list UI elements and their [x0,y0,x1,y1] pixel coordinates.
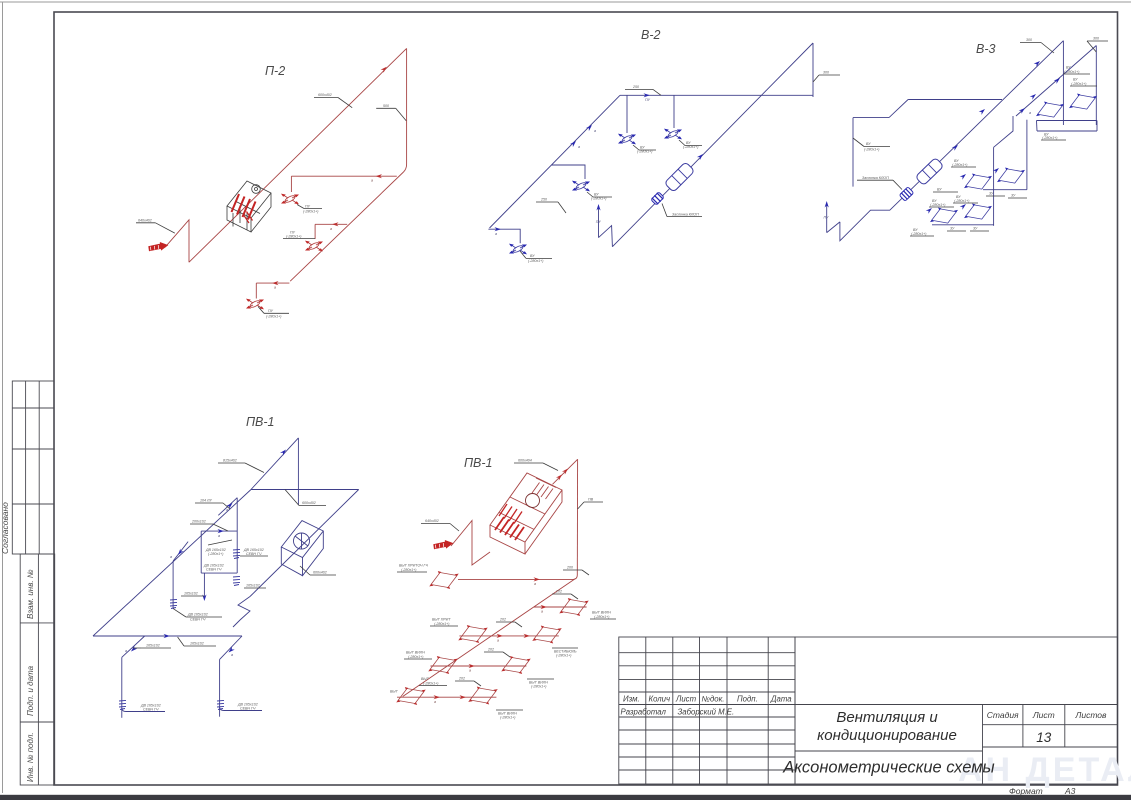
svg-text:а: а [541,610,543,614]
svg-text:165х102: 165х102 [246,584,260,588]
svg-text:(-280х1+): (-280х1+) [266,314,281,318]
svg-text:Листов: Листов [1075,710,1108,720]
svg-text:а: а [218,534,220,538]
svg-text:(-280х1+): (-280х1+) [1071,82,1086,86]
svg-text:ДВ 165х102: ДВ 165х102 [187,613,208,617]
svg-text:165х102: 165х102 [146,644,160,648]
svg-text:СЕВН ГЧ: СЕВН ГЧ [206,568,222,572]
svg-text:а: а [330,227,332,231]
svg-text:(-280х1+): (-280х1+) [683,145,698,149]
svg-text:ПВ: ПВ [588,498,594,502]
svg-text:(-280х1+): (-280х1+) [1042,136,1057,140]
svg-text:а: а [578,145,580,149]
svg-text:250: 250 [540,198,547,202]
svg-text:104 ЛУ: 104 ЛУ [200,499,212,503]
svg-text:Подп. и дата: Подп. и дата [26,665,35,716]
svg-text:а: а [469,669,471,673]
svg-text:а: а [495,232,497,236]
svg-text:ПУ: ПУ [824,216,830,220]
svg-text:ВУ: ВУ [530,254,535,258]
svg-text:(-280х1+): (-280х1+) [952,163,967,167]
svg-text:(-280х1+): (-280х1+) [408,655,423,659]
svg-text:200х102: 200х102 [191,520,206,524]
svg-text:300: 300 [1026,38,1032,42]
svg-text:Колич: Колич [649,695,671,704]
svg-text:165х102: 165х102 [190,642,204,646]
svg-text:(-280х1+): (-280х1+) [556,654,571,658]
svg-text:ВУ: ВУ [937,188,942,192]
svg-text:а: а [371,179,373,183]
svg-text:640х402: 640х402 [138,219,152,223]
svg-text:А3: А3 [1064,786,1076,796]
svg-text:300: 300 [823,71,829,75]
svg-text:Вентиляция и: Вентиляция и [836,709,938,726]
svg-text:П-2: П-2 [265,64,285,78]
svg-text:а: а [534,582,536,586]
svg-text:Заслонка КЛОП: Заслонка КЛОП [862,176,889,180]
svg-text:Инв. № подл.: Инв. № подл. [26,732,35,782]
svg-text:а: а [231,653,233,657]
svg-text:Заборский М.Е.: Заборский М.Е. [678,708,735,717]
svg-text:В-3: В-3 [976,42,996,56]
svg-text:600х402: 600х402 [302,501,316,505]
svg-text:ЗУ: ЗУ [973,227,978,231]
svg-text:Заслонка КЛОП: Заслонка КЛОП [672,212,699,216]
svg-text:250: 250 [632,85,639,89]
svg-text:600х404: 600х404 [518,459,532,463]
svg-text:ЗУ: ЗУ [950,227,955,231]
svg-text:Взам. инв. №: Взам. инв. № [26,569,35,619]
svg-text:Изм.: Изм. [623,695,640,704]
svg-text:а: а [170,555,172,559]
svg-text:СЕВН ГЧ: СЕВН ГЧ [143,708,159,712]
svg-text:а: а [434,700,436,704]
svg-text:Разработал: Разработал [621,708,667,717]
svg-text:ВУ: ВУ [866,142,871,146]
svg-text:200: 200 [566,566,573,570]
svg-text:ПВ-1: ПВ-1 [464,456,493,470]
svg-text:(-280х1+): (-280х1+) [286,235,301,239]
svg-text:(-280х1+): (-280х1+) [208,552,223,556]
svg-text:600х402: 600х402 [318,93,332,97]
svg-text:(-280х1+): (-280х1+) [911,232,926,236]
svg-text:13: 13 [1036,730,1052,745]
svg-text:202: 202 [487,648,494,652]
svg-text:а: а [226,508,228,512]
svg-text:ВЫТ: ВЫТ [390,690,399,694]
svg-text:Стадия: Стадия [987,710,1019,720]
svg-text:а: а [274,286,276,290]
svg-text:ПВ-1: ПВ-1 [246,415,275,429]
svg-text:Согласовано: Согласовано [0,502,10,554]
svg-text:(-280х1+): (-280х1+) [637,150,652,154]
svg-text:ЗУ: ЗУ [1011,194,1016,198]
svg-text:Дата: Дата [770,695,792,704]
svg-text:500: 500 [383,104,389,108]
svg-text:815х402: 815х402 [223,459,237,463]
svg-text:ПУ: ПУ [305,204,311,208]
svg-text:600х402: 600х402 [313,571,327,575]
svg-text:ЗУ: ЗУ [989,192,994,196]
svg-text:(-280х1+): (-280х1+) [864,147,879,151]
svg-text:(-280х1+): (-280х1+) [423,682,438,686]
svg-text:(-280х1+): (-280х1+) [954,199,969,203]
svg-text:СЕВН ГЧ: СЕВН ГЧ [240,707,256,711]
svg-text:№док.: №док. [702,695,725,704]
svg-text:а: а [1029,111,1031,115]
svg-text:а: а [125,649,127,653]
svg-text:(-280х1+): (-280х1+) [591,197,606,201]
svg-text:(-280х1+): (-280х1+) [401,568,416,572]
svg-text:Формат: Формат [1009,786,1043,796]
svg-text:а: а [594,129,596,133]
svg-text:640х402: 640х402 [425,519,439,523]
svg-text:(-280х1+): (-280х1+) [303,209,318,213]
svg-text:(-280х1+): (-280х1+) [1064,70,1079,74]
svg-text:202: 202 [555,590,562,594]
svg-text:(-280х1+): (-280х1+) [531,685,546,689]
svg-text:Подп.: Подп. [737,695,758,704]
svg-text:(-280х1+): (-280х1+) [434,622,449,626]
svg-text:СЕВН ГЧ: СЕВН ГЧ [190,618,206,622]
svg-text:202: 202 [458,677,465,681]
svg-text:СЕВН ГЧ: СЕВН ГЧ [246,552,262,556]
svg-text:кондиционирование: кондиционирование [817,727,957,744]
svg-text:ПУ: ПУ [268,309,274,313]
svg-text:(-280х1+): (-280х1+) [500,716,515,720]
svg-text:202: 202 [499,618,506,622]
svg-text:(-280х1+): (-280х1+) [594,615,609,619]
svg-text:Аксонометрические схемы: Аксонометрические схемы [782,759,994,777]
svg-text:(-280х1+): (-280х1+) [930,203,945,207]
svg-text:165х102: 165х102 [184,592,198,596]
svg-text:(-280х1+): (-280х1+) [528,259,543,263]
svg-text:а: а [497,639,499,643]
svg-text:300: 300 [1093,37,1099,41]
svg-text:В-2: В-2 [641,28,661,42]
svg-text:Лист: Лист [675,695,697,704]
svg-text:Лист: Лист [1032,710,1055,720]
svg-text:ПУ: ПУ [645,98,651,102]
svg-text:ПУ: ПУ [596,220,602,224]
